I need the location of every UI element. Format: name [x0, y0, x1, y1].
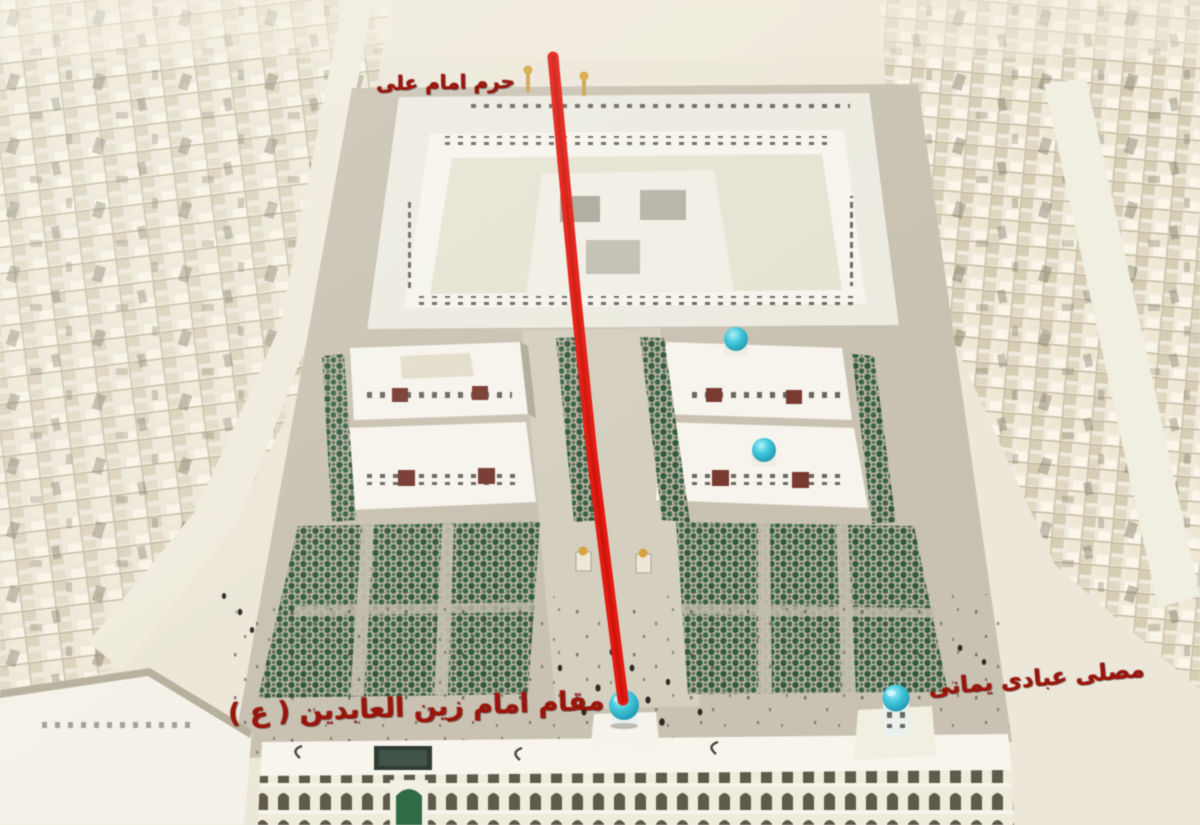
aerial-rendering: حرم امام علی مقام امام زین العابدین ( ع … — [0, 0, 1200, 825]
shrine-label: حرم امام علی — [376, 69, 515, 95]
annotated-aerial-map: حرم امام علی مقام امام زین العابدین ( ع … — [0, 0, 1200, 825]
